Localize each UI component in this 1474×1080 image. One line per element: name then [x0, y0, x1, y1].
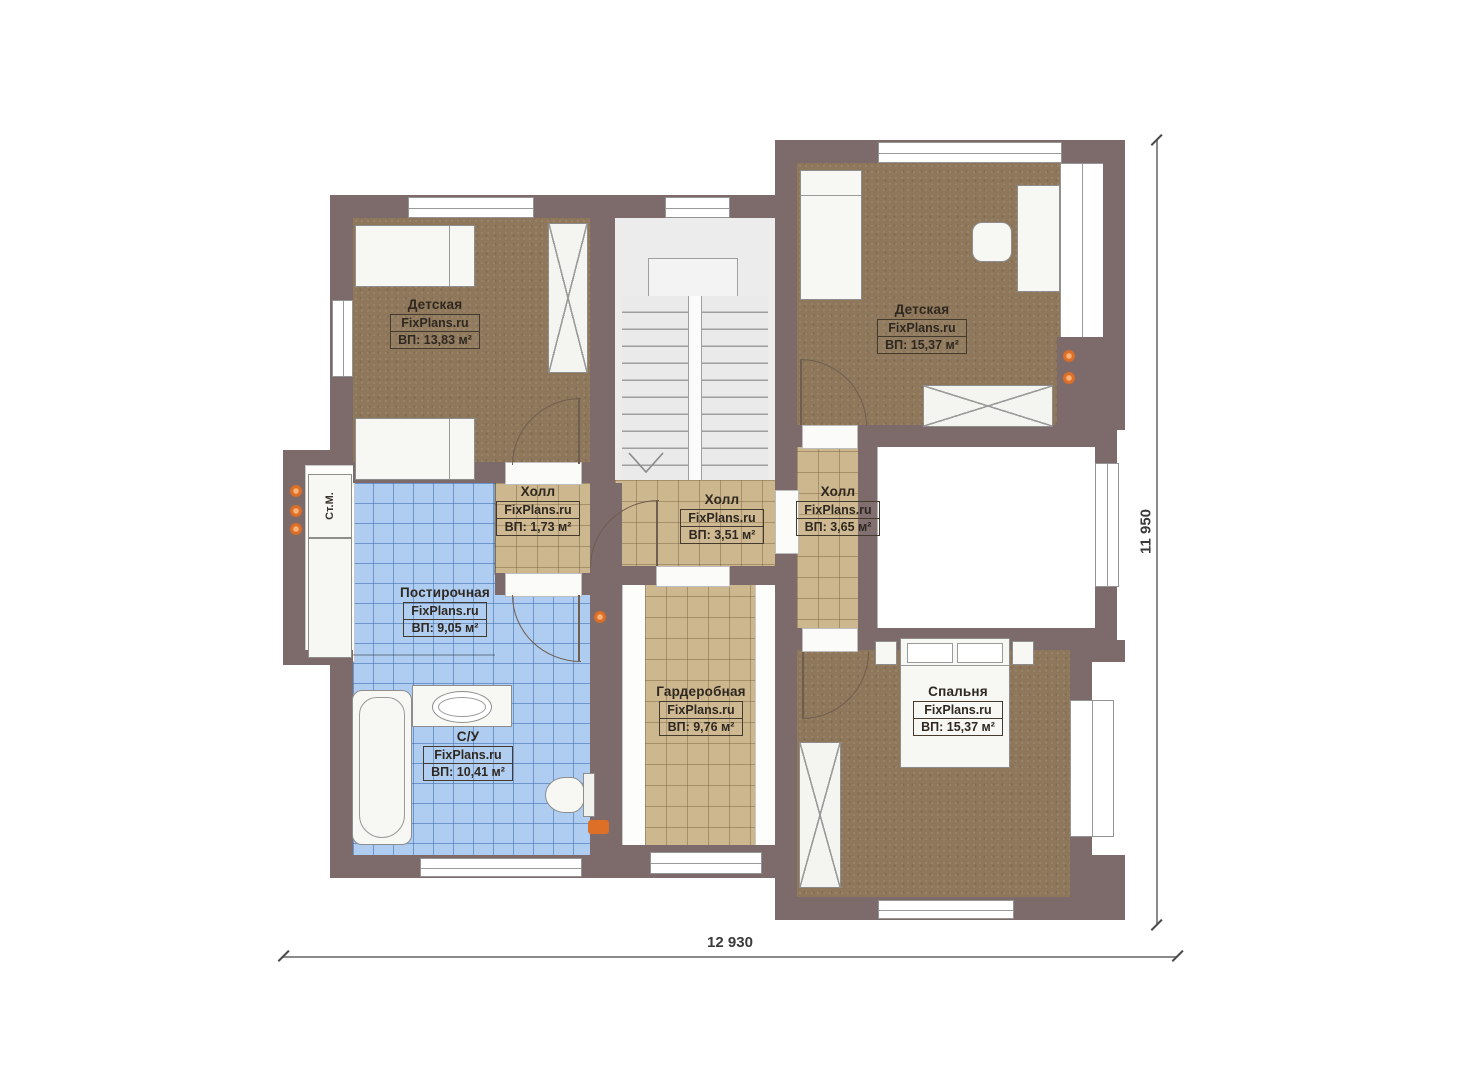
wardrobe-shelving-left — [622, 575, 647, 847]
room-area: ВП: 10,41 м² — [424, 763, 512, 780]
room-area: ВП: 1,73 м² — [497, 518, 578, 535]
room-info-box: FixPlans.ru ВП: 9,05 м² — [403, 602, 486, 637]
room-info-box: FixPlans.ru ВП: 3,51 м² — [680, 509, 763, 544]
room-site: FixPlans.ru — [660, 702, 741, 718]
room-label-child-1: Детская FixPlans.ru ВП: 13,83 м² — [375, 297, 495, 349]
room-name: Постирочная — [393, 585, 497, 600]
void-open-space — [877, 430, 1097, 642]
stair-down-arrow-icon — [626, 450, 666, 476]
room-info-box: FixPlans.ru ВП: 3,65 м² — [796, 501, 879, 536]
room-name: Детская — [375, 297, 495, 312]
room-label-hall-1: Холл FixPlans.ru ВП: 1,73 м² — [488, 484, 588, 536]
room-area: ВП: 15,37 м² — [878, 336, 966, 353]
room-label-hall-2: Холл FixPlans.ru ВП: 3,51 м² — [672, 492, 772, 544]
door-opening — [802, 628, 858, 652]
washing-machine: Ст.М. — [308, 474, 352, 538]
door-leaf — [802, 652, 804, 718]
bed-single — [355, 225, 475, 287]
room-site: FixPlans.ru — [497, 502, 578, 518]
door-leaf — [578, 595, 580, 661]
room-info-box: FixPlans.ru ВП: 1,73 м² — [496, 501, 579, 536]
floor-hall-3 — [797, 430, 858, 650]
room-area: ВП: 3,51 м² — [681, 526, 762, 543]
room-area: ВП: 9,05 м² — [404, 619, 485, 636]
window — [665, 197, 730, 218]
wall — [1092, 855, 1125, 897]
nightstand — [1012, 641, 1034, 665]
room-site: FixPlans.ru — [391, 315, 479, 331]
wardrobe — [923, 385, 1053, 427]
wardrobe-shelving-right — [755, 575, 777, 847]
laundry-counter — [308, 538, 352, 658]
room-site: FixPlans.ru — [797, 502, 878, 518]
window — [1095, 463, 1119, 587]
bed-single — [355, 418, 475, 480]
door-opening — [505, 573, 582, 597]
room-info-box: FixPlans.ru ВП: 10,41 м² — [423, 746, 513, 781]
room-site: FixPlans.ru — [878, 320, 966, 336]
room-name: Холл — [788, 484, 888, 499]
room-area: ВП: 13,83 м² — [391, 331, 479, 348]
stair-flight-right — [702, 296, 768, 480]
window — [332, 300, 353, 377]
room-label-wardrobe: Гардеробная FixPlans.ru ВП: 9,76 м² — [648, 684, 754, 736]
room-label-child-2: Детская FixPlans.ru ВП: 15,37 м² — [862, 302, 982, 354]
wall — [590, 218, 615, 480]
toilet — [545, 777, 585, 813]
door-leaf — [800, 359, 802, 425]
stair-opening-rail — [648, 258, 738, 297]
door-opening — [656, 566, 730, 587]
door-opening — [802, 425, 858, 449]
towel-radiator-icon — [588, 820, 609, 834]
wall — [330, 660, 353, 878]
room-area: ВП: 9,76 м² — [660, 718, 741, 735]
toilet-tank — [583, 773, 595, 817]
room-info-box: FixPlans.ru ВП: 15,37 м² — [913, 701, 1003, 736]
room-site: FixPlans.ru — [424, 747, 512, 763]
wall-light-icon — [593, 610, 607, 624]
dimension-height: 11 950 — [1138, 487, 1155, 577]
stair-divider — [688, 296, 702, 480]
room-name: С/У — [418, 729, 518, 744]
partition-line — [353, 654, 495, 656]
window — [420, 858, 582, 877]
room-label-hall-3: Холл FixPlans.ru ВП: 3,65 м² — [788, 484, 888, 536]
window — [1070, 700, 1114, 837]
dimension-line-right — [1156, 140, 1158, 925]
wall — [858, 430, 877, 650]
room-name: Гардеробная — [648, 684, 754, 699]
window — [650, 852, 762, 874]
bathtub — [352, 690, 412, 845]
wall — [283, 450, 305, 665]
room-name: Спальня — [908, 684, 1008, 699]
room-site: FixPlans.ru — [914, 702, 1002, 718]
room-name: Детская — [862, 302, 982, 317]
wall — [1103, 140, 1125, 430]
room-info-box: FixPlans.ru ВП: 13,83 м² — [390, 314, 480, 349]
wall-light-icon — [1062, 349, 1076, 363]
door-opening — [505, 462, 582, 485]
door-leaf — [578, 398, 580, 464]
room-label-bathroom: С/У FixPlans.ru ВП: 10,41 м² — [418, 729, 518, 781]
room-info-box: FixPlans.ru ВП: 15,37 м² — [877, 319, 967, 354]
door-leaf — [656, 500, 658, 566]
bed-single — [800, 170, 862, 300]
wall-light-icon — [289, 504, 303, 518]
window — [878, 142, 1062, 163]
room-site: FixPlans.ru — [404, 603, 485, 619]
room-site: FixPlans.ru — [681, 510, 762, 526]
room-name: Холл — [488, 484, 588, 499]
room-area: ВП: 3,65 м² — [797, 518, 878, 535]
room-label-laundry: Постирочная FixPlans.ru ВП: 9,05 м² — [393, 585, 497, 637]
room-info-box: FixPlans.ru ВП: 9,76 м² — [659, 701, 742, 736]
wardrobe — [799, 742, 841, 888]
wardrobe — [548, 223, 588, 373]
wall-light-icon — [1062, 371, 1076, 385]
window — [408, 197, 534, 218]
wall — [1092, 640, 1125, 662]
floor-plan: Ст.М. Детская FixPlans.ru ВП: 13,83 м² Д… — [0, 0, 1474, 1080]
sink — [432, 691, 492, 723]
washing-machine-label: Ст.М. — [324, 492, 336, 520]
wall — [305, 450, 353, 465]
desk — [1017, 185, 1060, 292]
chair — [972, 222, 1012, 262]
dimension-width: 12 930 — [660, 934, 800, 951]
window — [878, 900, 1014, 919]
wall-light-icon — [289, 522, 303, 536]
room-area: ВП: 15,37 м² — [914, 718, 1002, 735]
dimension-line-bottom — [283, 956, 1177, 958]
window-bay-child-2 — [1060, 163, 1104, 339]
nightstand — [875, 641, 897, 665]
wall-light-icon — [289, 484, 303, 498]
room-label-bedroom: Спальня FixPlans.ru ВП: 15,37 м² — [908, 684, 1008, 736]
room-name: Холл — [672, 492, 772, 507]
